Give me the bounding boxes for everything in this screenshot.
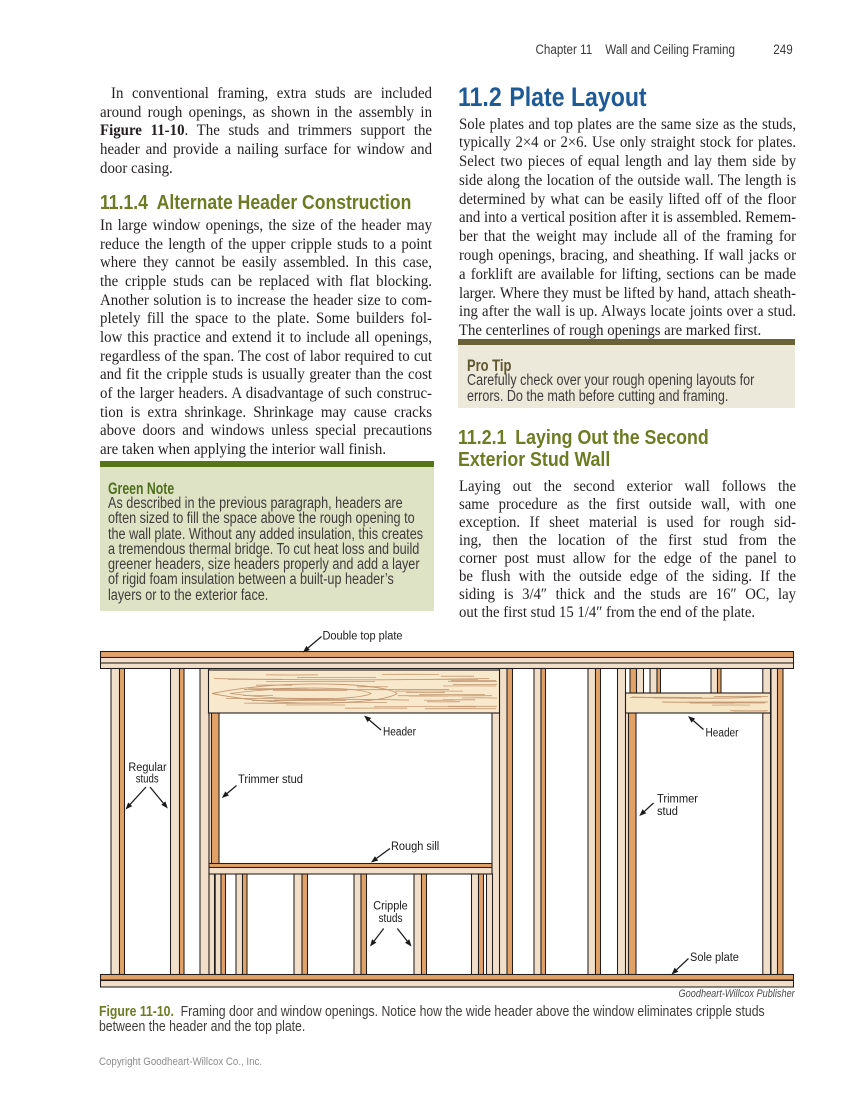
- svg-text:Trimmer: Trimmer: [657, 794, 698, 806]
- svg-text:Sole plate: Sole plate: [690, 952, 739, 964]
- svg-text:Regular: Regular: [128, 762, 166, 774]
- svg-text:Cripple: Cripple: [373, 900, 407, 912]
- svg-text:Header: Header: [383, 727, 416, 739]
- svg-text:Rough sill: Rough sill: [391, 841, 439, 853]
- svg-text:studs: studs: [136, 773, 159, 785]
- svg-text:Trimmer stud: Trimmer stud: [238, 774, 303, 786]
- svg-text:Header: Header: [706, 727, 739, 739]
- svg-text:studs: studs: [378, 913, 402, 925]
- svg-text:Double top plate: Double top plate: [323, 630, 403, 642]
- svg-text:stud: stud: [657, 806, 678, 818]
